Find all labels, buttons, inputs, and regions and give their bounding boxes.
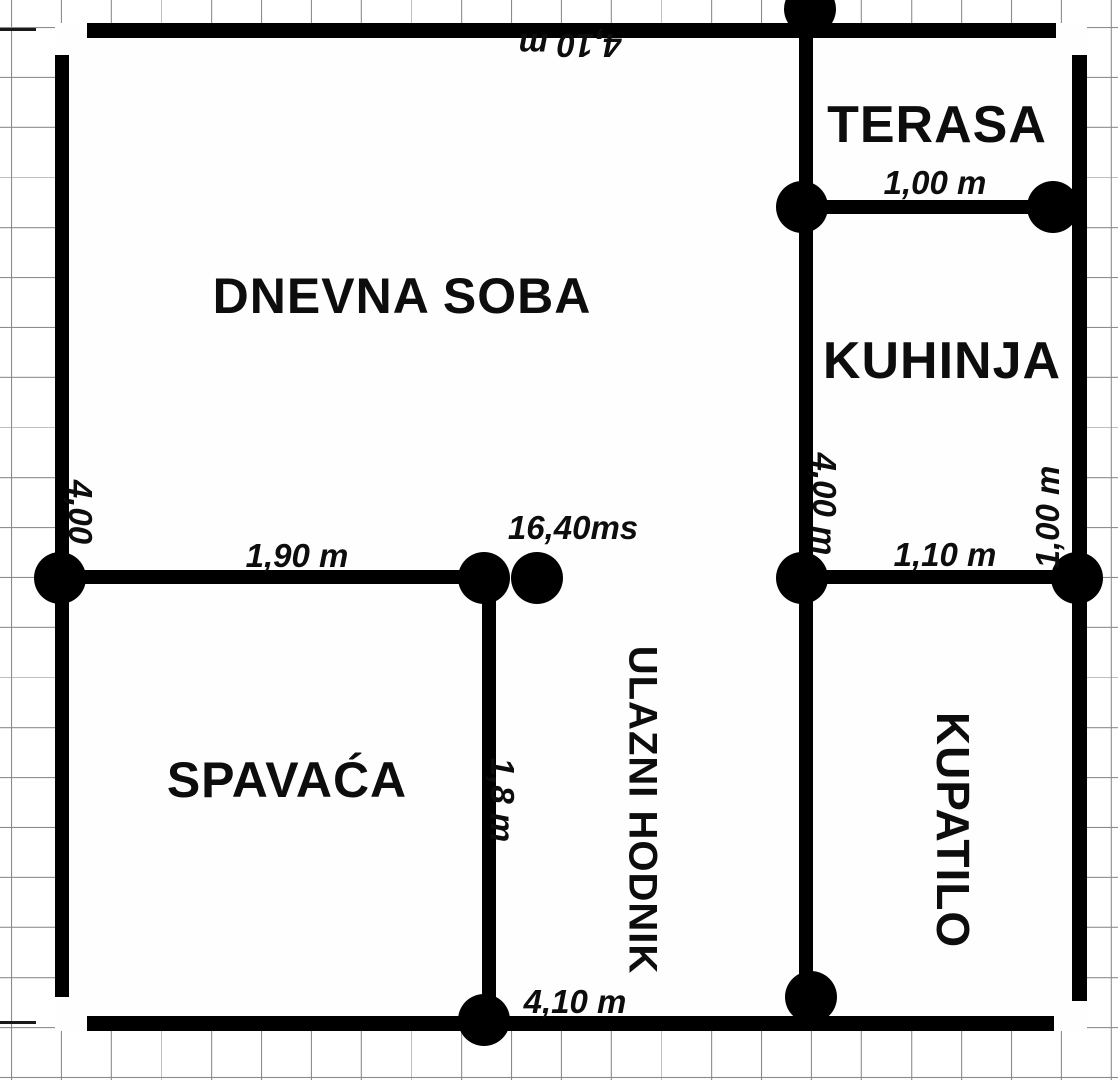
room-label-terasa: TERASA	[827, 95, 1047, 155]
room-label-spavaca: SPAVAĆA	[167, 751, 407, 809]
grid-accent-bottom-left	[0, 1021, 36, 1024]
node-bedroom-bottom	[458, 994, 510, 1046]
room-label-kuhinja: KUHINJA	[823, 331, 1061, 391]
room-label-dnevna-soba: DNEVNA SOBA	[213, 267, 592, 325]
dim-kitchen-right-height: 1,00 m	[1029, 466, 1067, 569]
node-left-junction	[34, 552, 86, 604]
dim-hall-width: 1,8 m	[483, 758, 521, 842]
grid-accent-top-left	[0, 28, 36, 31]
room-label-ulazni-hodnik: ULAZNI HODNIK	[620, 646, 665, 975]
node-bedroom-junction	[458, 552, 510, 604]
dim-kitchen-height: 4,00 m	[805, 453, 843, 556]
dim-area: 16,40ms	[508, 509, 638, 547]
node-terasa-left	[776, 181, 828, 233]
dim-top-width: 4,10 m	[519, 26, 622, 64]
node-area-marker	[511, 552, 563, 604]
dim-bedroom-door: 1,90 m	[246, 537, 349, 575]
room-label-kupatilo: KUPATILO	[926, 712, 980, 948]
floor-plan: DNEVNA SOBA TERASA KUHINJA SPAVAĆA ULAZN…	[0, 0, 1118, 1080]
node-hall-junction	[776, 552, 828, 604]
dim-kitchen-door: 1,10 m	[894, 536, 997, 574]
node-terasa-right	[1027, 181, 1079, 233]
node-hall-bottom	[785, 971, 837, 1023]
dim-terasa-width: 1,00 m	[884, 164, 987, 202]
terasa-wall	[805, 200, 1055, 214]
dim-left-height: 4,00	[61, 480, 99, 544]
dim-bottom-width: 4,10 m	[524, 983, 627, 1021]
